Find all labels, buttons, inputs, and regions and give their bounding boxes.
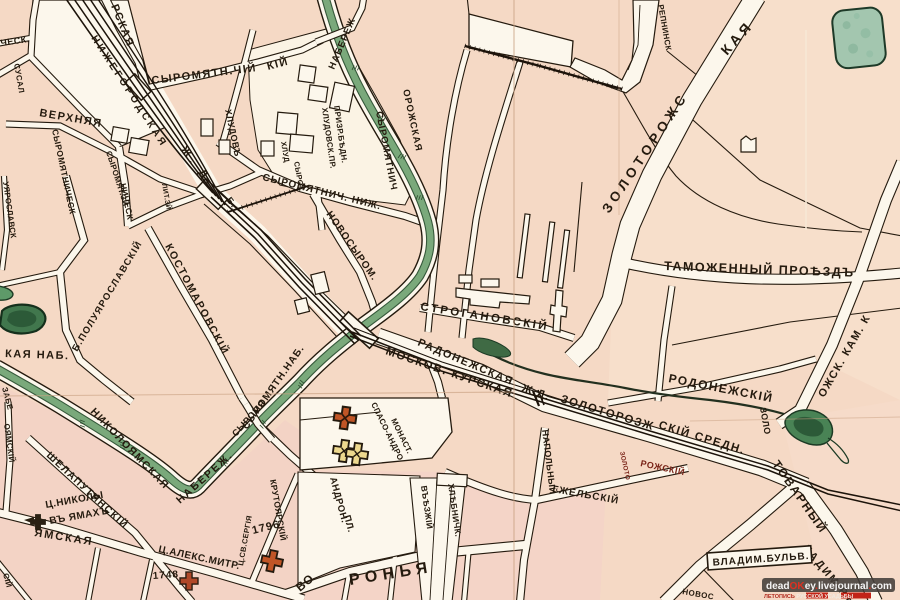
svg-text:ЛЕТОПИСЬ РУССКОЙ УСАДЬБЫ: ЛЕТОПИСЬ РУССКОЙ УСАДЬБЫ <box>764 592 854 600</box>
svg-text:КАЯ НАБ.: КАЯ НАБ. <box>5 348 70 362</box>
svg-text:deadOKey.livejournal.com: deadOKey.livejournal.com <box>766 580 892 592</box>
svg-text:1748: 1748 <box>152 569 179 582</box>
